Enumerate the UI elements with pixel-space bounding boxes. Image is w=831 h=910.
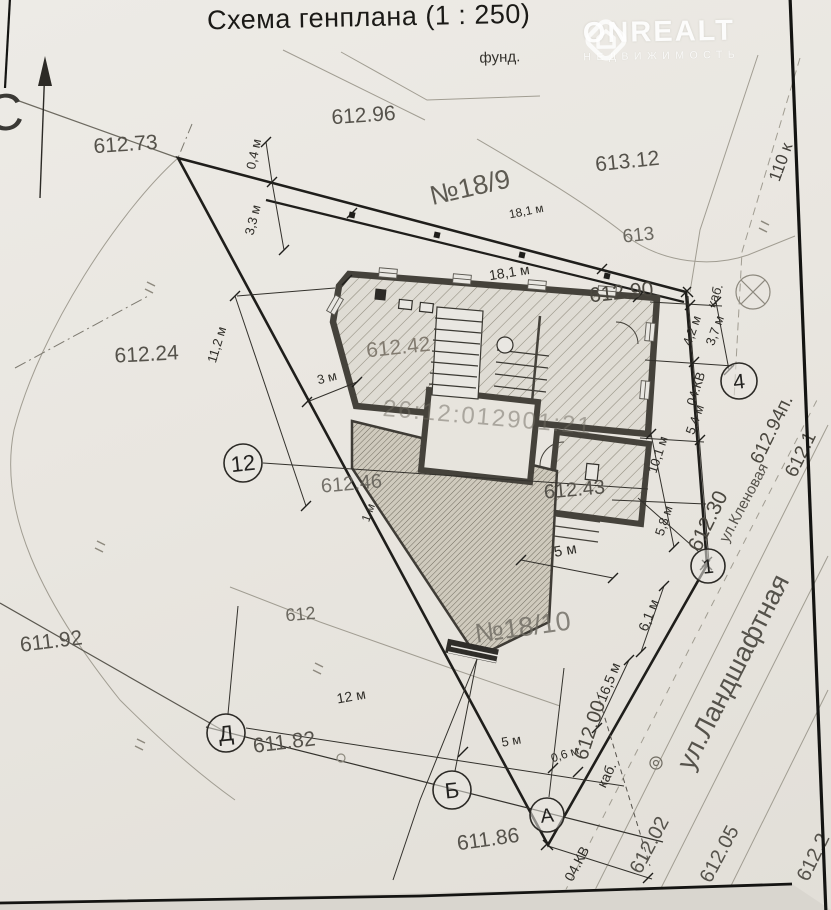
dim-18-1-upper: 18,1 м xyxy=(508,201,545,221)
elev-611-92: 611.92 xyxy=(19,626,84,656)
power-04kv-bottom: 04.КВ xyxy=(561,844,592,884)
north-arrow-icon xyxy=(38,56,52,198)
axis-marker-12: 12 xyxy=(224,444,262,482)
power-110: 110 к xyxy=(765,140,796,184)
dim-6-1: 6,1 м xyxy=(635,597,662,634)
axis-marker-d: Д xyxy=(207,714,245,752)
dim-0-4: 0,4 м xyxy=(243,137,264,170)
elev-613-12: 613.12 xyxy=(594,147,660,177)
dim-4-2: 4,2 м xyxy=(679,313,704,347)
elev-612-1: 612.1 xyxy=(781,429,821,481)
power-04kv-right: 04.КВ xyxy=(683,370,708,407)
dim-11-2: 11,2 м xyxy=(204,325,229,365)
street-landshaftnaya: ул.Ландшафтная xyxy=(671,569,795,774)
building-footprint xyxy=(327,268,657,664)
dim-3-3: 3,3 м xyxy=(242,203,264,236)
elev-611-82: 611.82 xyxy=(252,727,317,757)
elev-612-00: 612.00 xyxy=(570,698,610,763)
dim-5-4: 5,4 м xyxy=(682,402,707,436)
dim-18-1: 18,1 м xyxy=(488,261,531,283)
dim-3: 3 м xyxy=(316,368,339,387)
dim-5-8: 5,8 м xyxy=(652,504,676,538)
north-letter: С xyxy=(0,83,26,144)
axis-marker-a: А xyxy=(530,798,564,832)
dim-12: 12 м xyxy=(335,686,366,707)
elev-612-73: 612.73 xyxy=(93,131,159,158)
elev-612-02: 612.02 xyxy=(626,813,674,877)
svg-text:Д: Д xyxy=(217,720,235,746)
contour-612: 612 xyxy=(285,603,317,626)
cable-label-top: каб. xyxy=(704,281,726,309)
dim-5-bottom: 5 м xyxy=(500,731,522,749)
chimney-block xyxy=(374,289,386,301)
power-pole-icon xyxy=(736,275,770,309)
axis-marker-1: 1 xyxy=(691,549,725,583)
contour-613: 613 xyxy=(622,223,656,247)
elev-612-96: 612.96 xyxy=(331,102,397,129)
dim-5-center: 5 м xyxy=(553,540,578,561)
site-plan-drawing: Сфунд.612.96612.73613.12№18/918,1 м61318… xyxy=(0,0,831,910)
cable-label-bottom: каб. xyxy=(594,760,620,791)
elev-612-24: 612.24 xyxy=(114,341,180,367)
axis-marker-4: 4 xyxy=(721,363,757,399)
elev-612-05: 612.05 xyxy=(696,822,744,886)
svg-text:1: 1 xyxy=(701,556,714,579)
parcel-no-18-9: №18/9 xyxy=(427,163,513,211)
genplan-sheet: Сфунд.612.96612.73613.12№18/918,1 м61318… xyxy=(0,0,831,910)
axis-marker-b: Б xyxy=(433,771,471,809)
svg-text:Б: Б xyxy=(444,777,461,803)
elev-611-86: 611.86 xyxy=(455,824,520,855)
svg-text:12: 12 xyxy=(230,450,257,477)
label-fund: фунд. xyxy=(479,48,520,66)
